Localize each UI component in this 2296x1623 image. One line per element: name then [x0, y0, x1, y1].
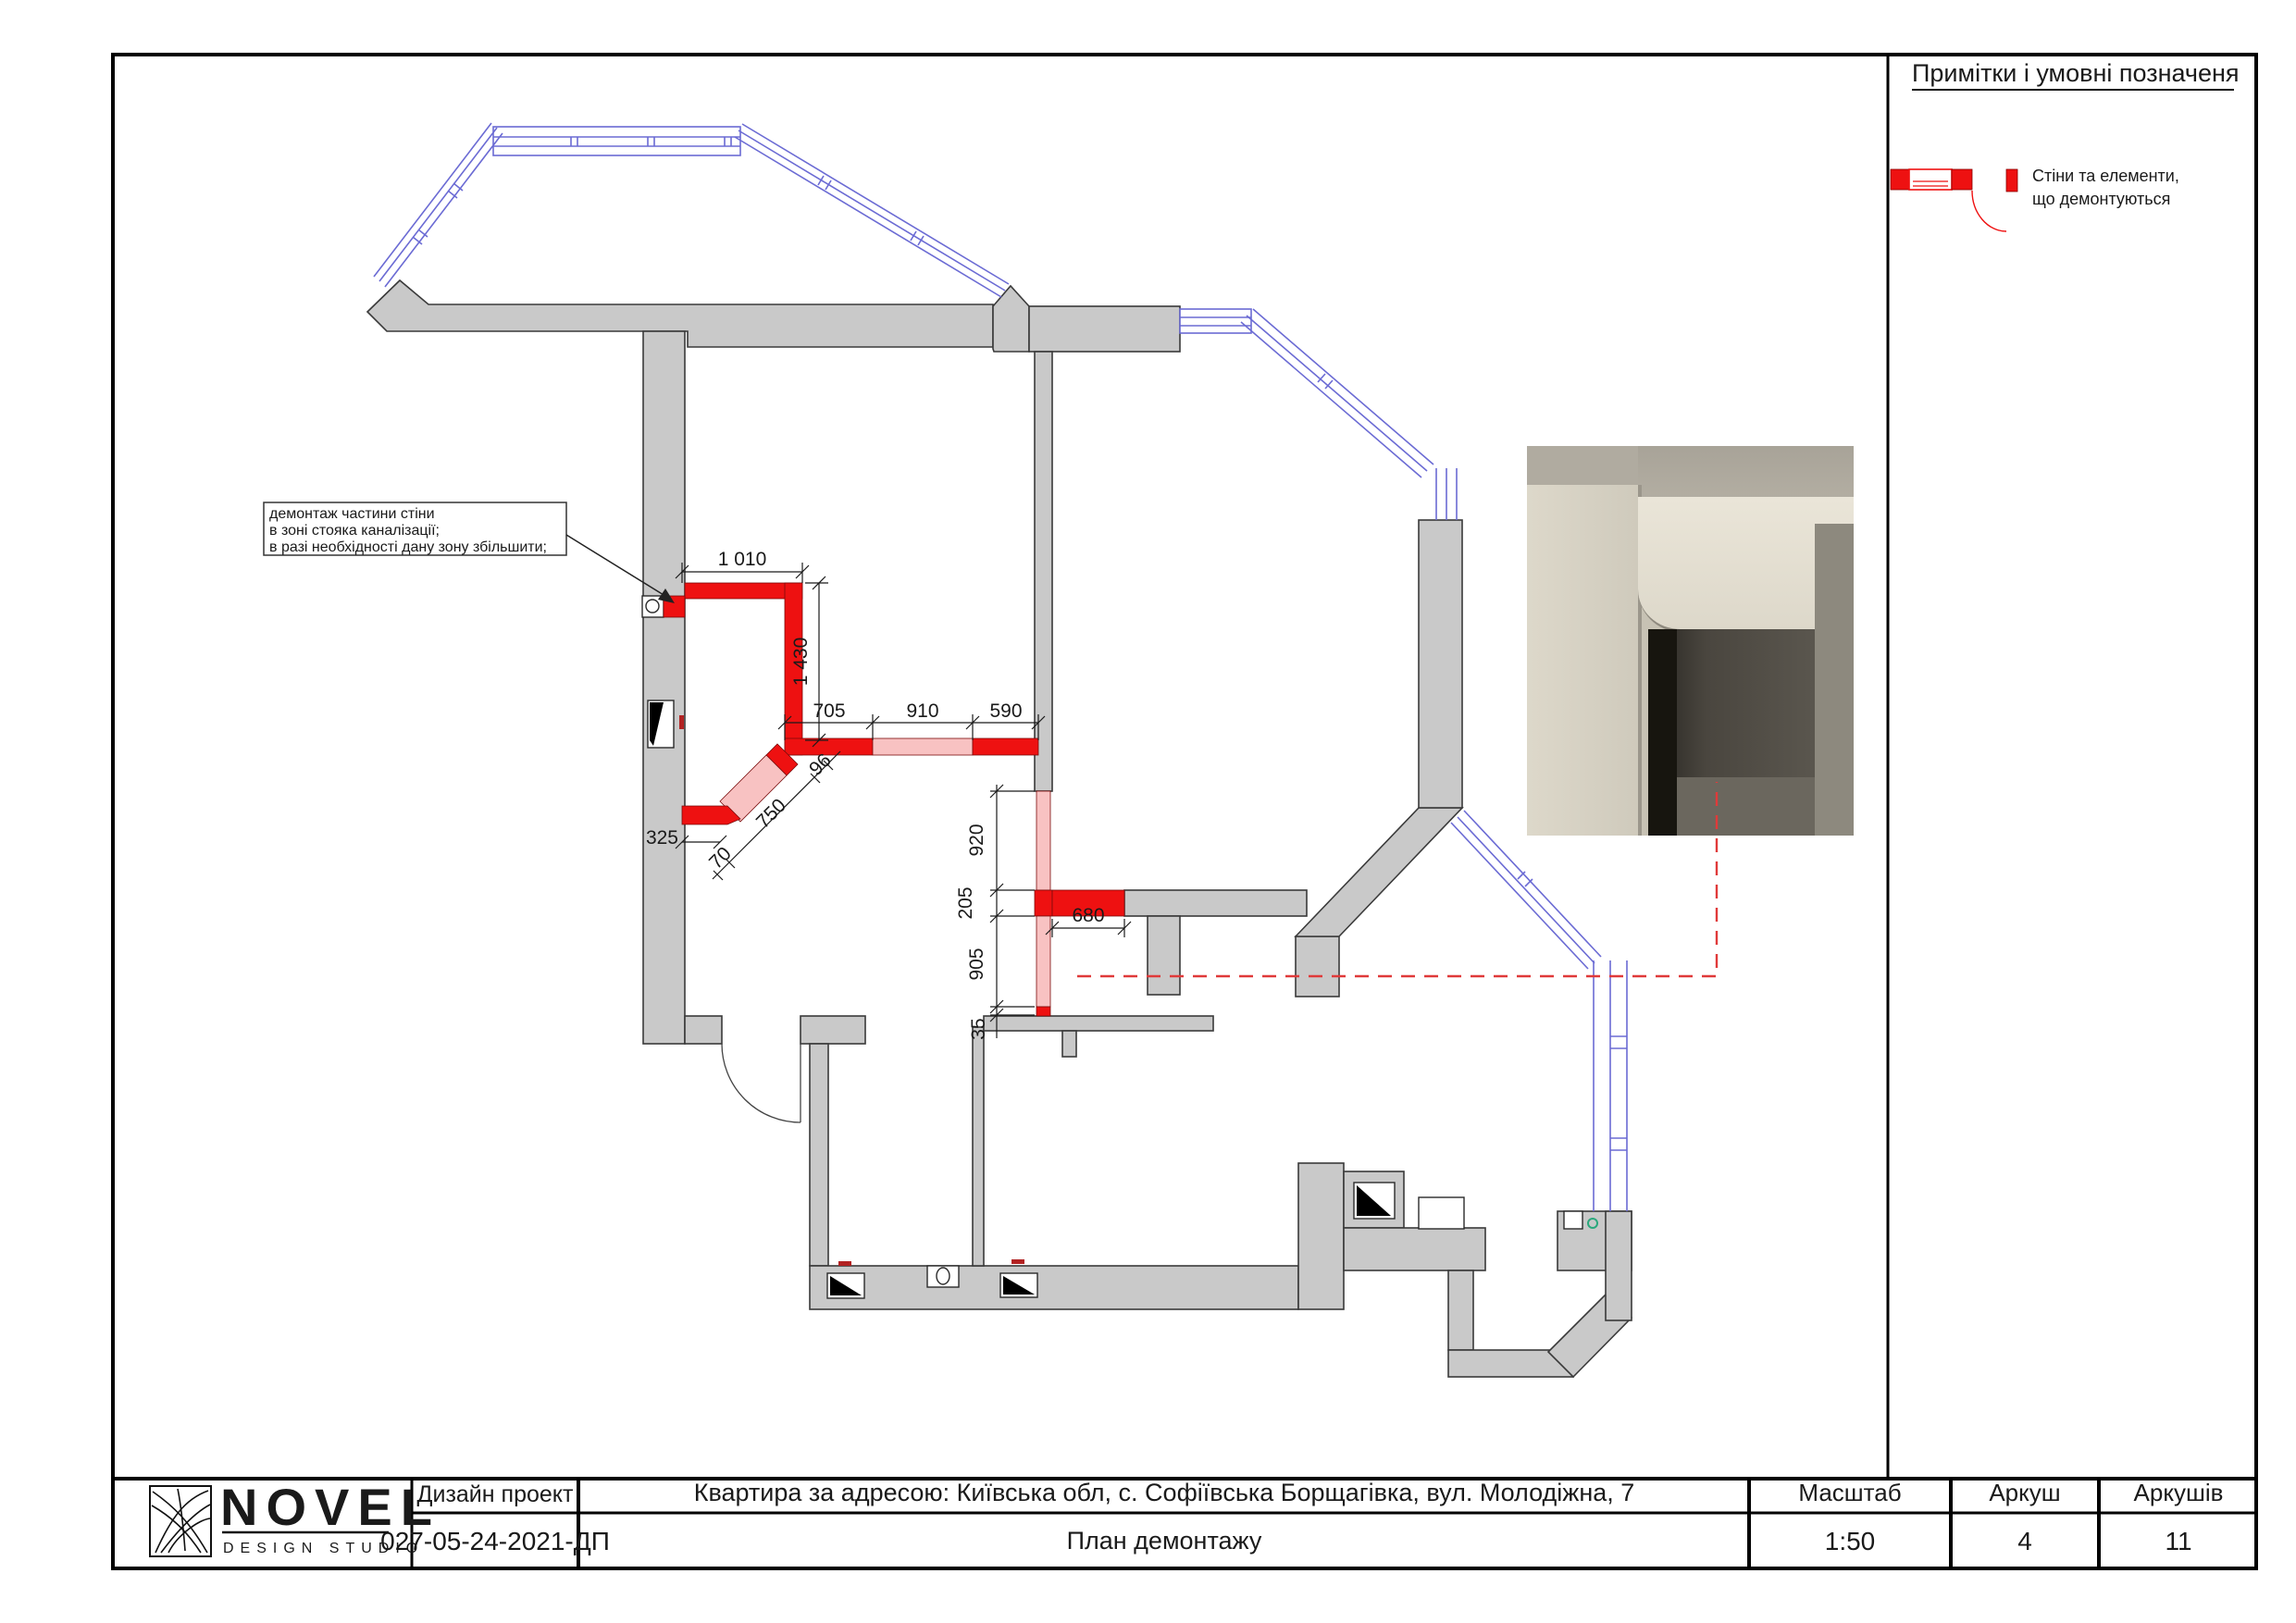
wall-diag-stub	[1296, 936, 1339, 997]
wall-bath-top-a	[800, 1016, 865, 1044]
bay1-left-diagonal	[374, 123, 503, 287]
sheets-total-label: Аркушів	[2134, 1479, 2224, 1506]
demo-divider-red-end	[1036, 1007, 1050, 1016]
logo-swoosh-icon	[152, 1489, 210, 1553]
wall-room2-top	[1029, 306, 1180, 352]
demo-seg-590	[973, 738, 1038, 755]
wall-right-pillar	[1419, 520, 1462, 808]
drawing-sheet: 1 010 1 430 705 910 590 325 70 750 96 92…	[0, 0, 2296, 1623]
dim-680: 680	[1072, 905, 1104, 926]
bay3-vertical-band	[1594, 960, 1627, 1211]
wall-door-stub	[685, 1016, 722, 1044]
demo-divider-pink-1	[1036, 791, 1050, 890]
bay1-top-band	[493, 127, 740, 155]
annotation-callout: демонтаж частини стіни в зоні стояка кан…	[264, 502, 675, 603]
project-type: Дизайн проект	[417, 1481, 574, 1507]
sheet-frame	[113, 55, 2256, 1568]
wall-diagonal-mid	[1296, 808, 1462, 936]
wall-bath-right	[973, 1027, 984, 1266]
demo-divider-pink-2	[1036, 916, 1050, 1007]
legend-item-line2: що демонтуються	[2032, 190, 2170, 208]
legend-item-line1: Стіни та елементи,	[2032, 167, 2179, 185]
dim-590: 590	[989, 700, 1022, 722]
wall-680-gray	[1124, 890, 1307, 916]
dim-325: 325	[646, 827, 678, 849]
bay2-vertical-band	[1436, 468, 1457, 520]
wall-bottom	[810, 1266, 1298, 1309]
demo-tick	[679, 715, 684, 729]
wall-pillar2	[1298, 1163, 1344, 1309]
project-address: Квартира за адресою: Київська обл, с. Со…	[694, 1479, 1635, 1506]
plan-drawing: 1 010 1 430 705 910 590 325 70 750 96 92…	[0, 0, 2296, 1623]
dim-910: 910	[906, 700, 938, 722]
sheet-number-value: 4	[2017, 1527, 2032, 1555]
demo-divider-red	[1035, 890, 1052, 916]
title-block: NOVEL DESIGN STUDIO Дизайн проект 027-05…	[113, 1478, 2256, 1568]
wall-left-column	[643, 331, 685, 1044]
dim-205: 205	[955, 886, 976, 919]
demo-seg-910-pink	[873, 738, 973, 755]
bay2-diagonal	[1241, 309, 1433, 477]
wall-stub-small	[1062, 1031, 1076, 1057]
legend-panel: Примітки і умовні позначеня Стіни та еле…	[1891, 59, 2240, 231]
demo-tick	[838, 1261, 851, 1266]
bay1-right-diagonal	[735, 124, 1009, 297]
annotation-line2: в зоні стояка каналізації;	[269, 523, 440, 539]
sheet-number-label: Аркуш	[1989, 1479, 2060, 1506]
dim-705: 705	[813, 700, 845, 722]
wall-box-small	[1564, 1211, 1582, 1229]
legend-demolished-wall-icon	[1891, 169, 2017, 231]
wall-bath-left	[810, 1044, 828, 1266]
wall-box	[1419, 1197, 1464, 1229]
sheets-total-value: 11	[2165, 1527, 2191, 1555]
scale-value: 1:50	[1825, 1527, 1876, 1555]
demo-seg-705	[785, 738, 873, 755]
annotation-line1: демонтаж частини стіни	[269, 506, 435, 522]
wall-vstub2	[1148, 916, 1180, 995]
wall-bath-top-b	[984, 1016, 1213, 1031]
dim-920: 920	[966, 824, 987, 856]
wall-v2	[1448, 1270, 1473, 1350]
dim-1010: 1 010	[718, 549, 767, 570]
sheet-title: План демонтажу	[1067, 1527, 1262, 1555]
project-code: 027-05-24-2021-ДП	[380, 1527, 610, 1555]
bay2-top-band	[1180, 309, 1251, 333]
wall-divider-gray	[1035, 352, 1052, 791]
dim-1430: 1 430	[790, 638, 812, 687]
dim-905: 905	[966, 948, 987, 980]
dim-35: 35	[968, 1018, 989, 1039]
demo-tick	[1011, 1259, 1024, 1264]
wall-right-v	[1606, 1211, 1632, 1320]
wall-h2	[1344, 1228, 1485, 1270]
door-swing-arc	[722, 1044, 800, 1122]
dim-70: 70	[705, 843, 736, 873]
bay3-diagonal	[1451, 811, 1601, 969]
annotation-line3: в разі необхідності дану зону збільшити;	[269, 539, 547, 555]
scale-label: Масштаб	[1798, 1479, 1901, 1506]
legend-title: Примітки і умовні позначеня	[1912, 59, 2240, 87]
